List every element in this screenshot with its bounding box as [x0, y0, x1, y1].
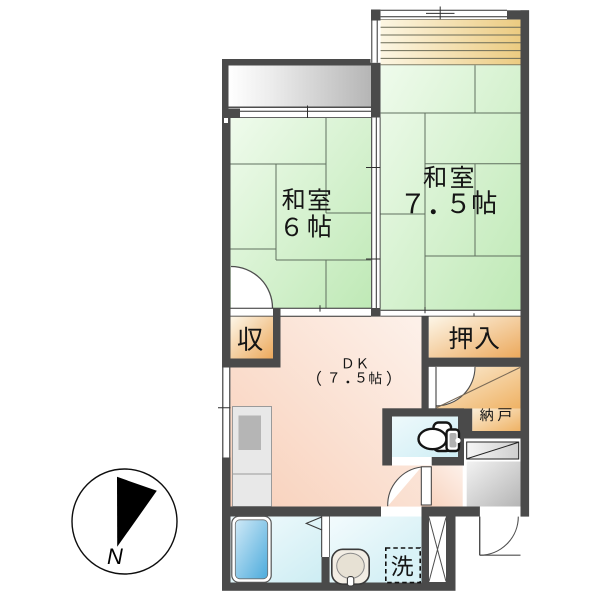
svg-text:N: N	[107, 544, 123, 569]
